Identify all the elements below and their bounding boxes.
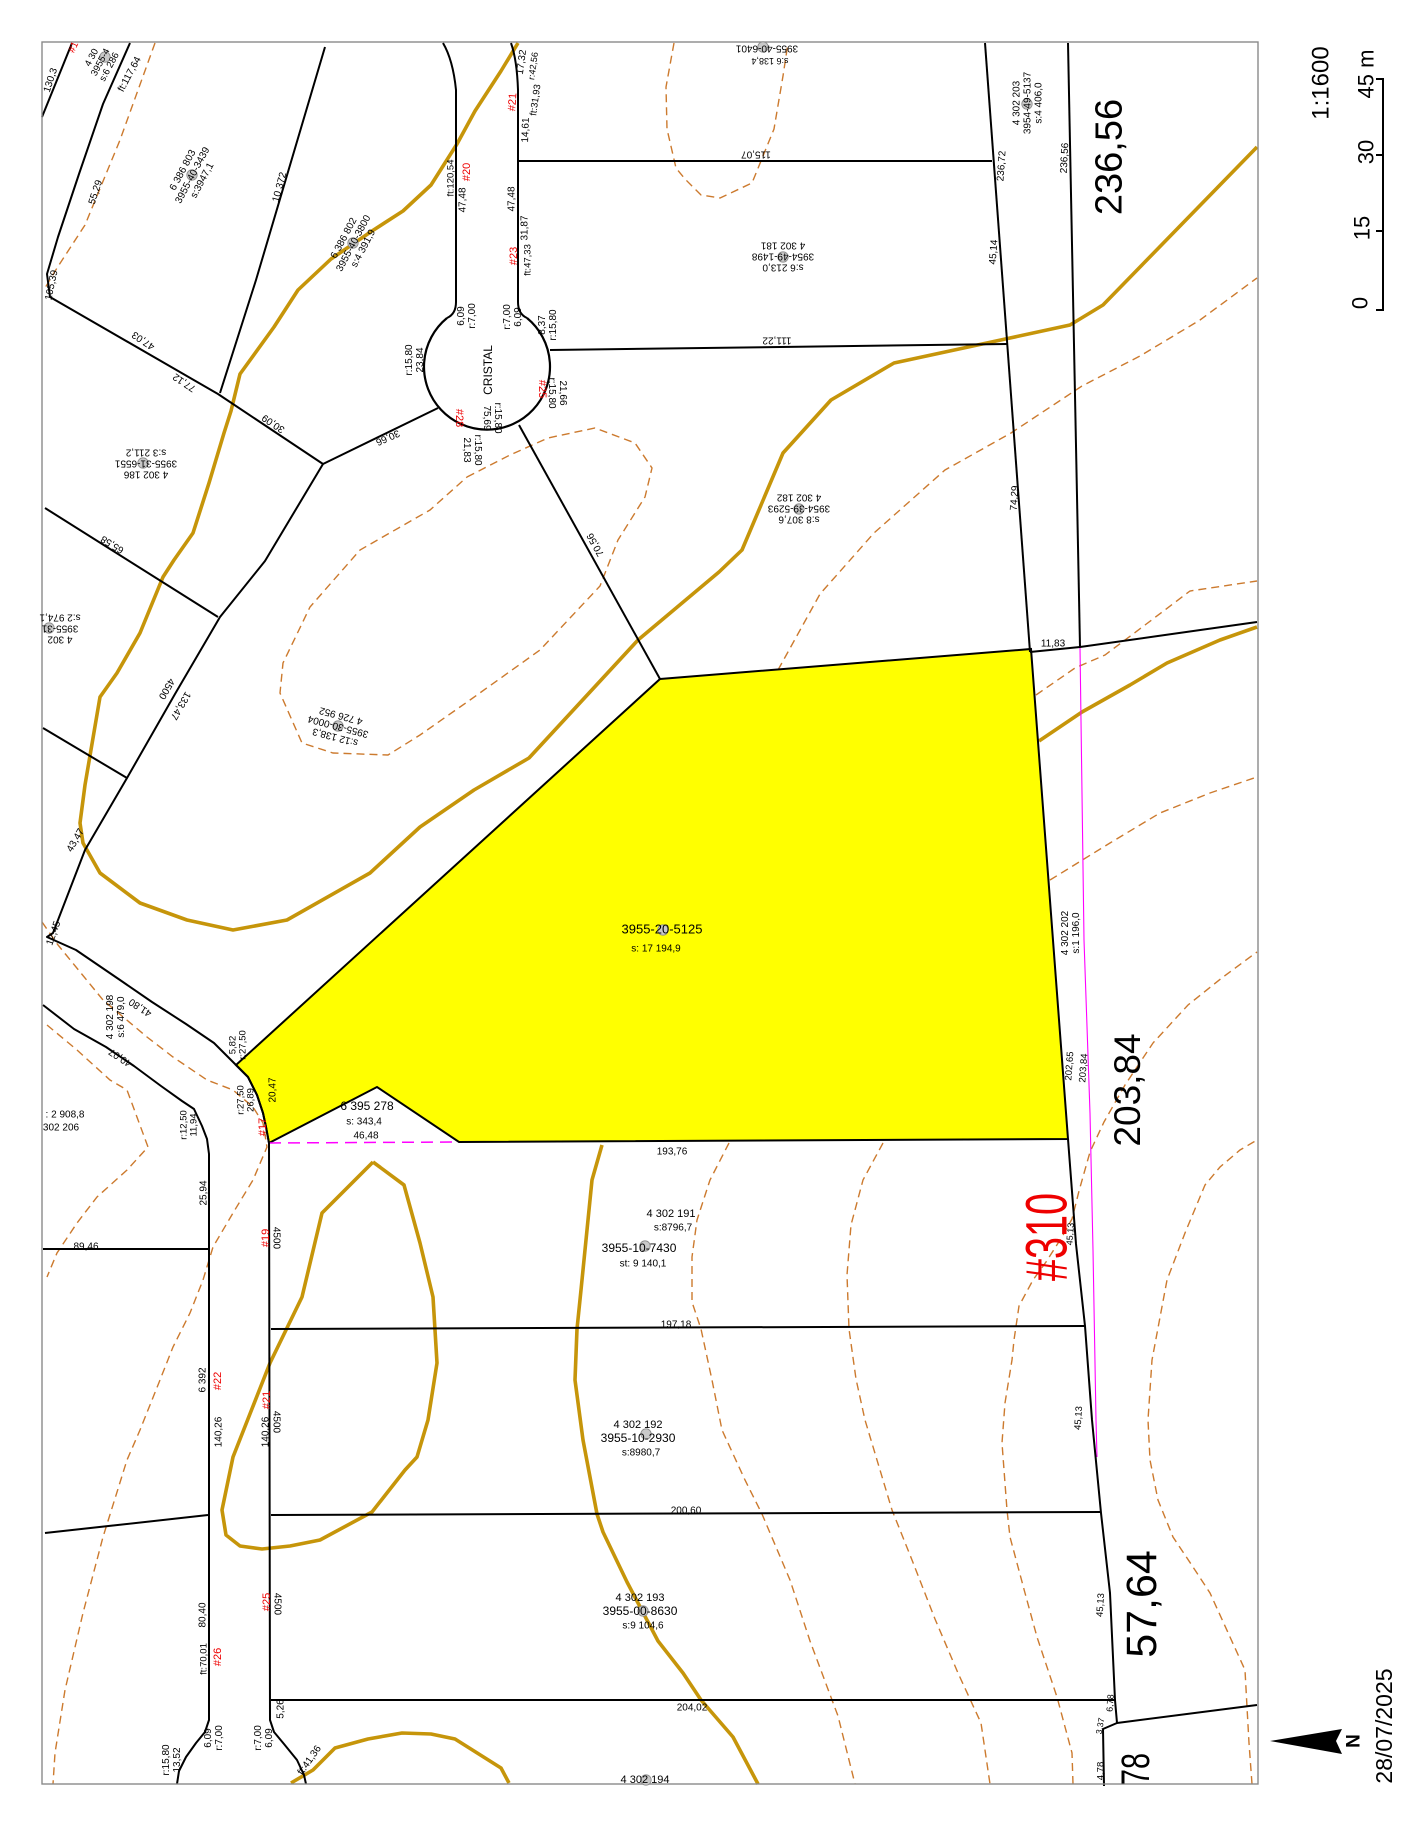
svg-text:r:7,00: r:7,00: [253, 1725, 264, 1751]
svg-text:57,64: 57,64: [1118, 1550, 1166, 1658]
svg-text:3955-40-6401: 3955-40-6401: [735, 43, 798, 54]
svg-text:#26: #26: [212, 1648, 224, 1666]
svg-text:45,13: 45,13: [1072, 1406, 1085, 1430]
svg-text:r:7,00: r:7,00: [502, 304, 513, 330]
svg-text:203,84: 203,84: [1107, 1033, 1148, 1146]
svg-text:111,22: 111,22: [762, 335, 792, 346]
svg-text:30: 30: [1354, 140, 1379, 164]
svg-text:31,87: 31,87: [520, 215, 531, 240]
svg-text:4 302 182: 4 302 182: [776, 492, 821, 503]
svg-text:r:27,50: r:27,50: [237, 1030, 248, 1060]
svg-text:14,61: 14,61: [520, 117, 532, 143]
svg-text:4 302 193: 4 302 193: [616, 1592, 665, 1604]
svg-text:4,78: 4,78: [1095, 1762, 1106, 1781]
svg-text:80,40: 80,40: [198, 1602, 209, 1627]
svg-text:78: 78: [1114, 1753, 1158, 1785]
svg-text:r:15,80: r:15,80: [546, 377, 557, 409]
svg-text:4 302 194: 4 302 194: [621, 1774, 670, 1786]
svg-text:s:3 211,2: s:3 211,2: [125, 447, 166, 458]
svg-text:140,26: 140,26: [214, 1416, 225, 1447]
svg-text:r:15,80: r:15,80: [404, 344, 415, 376]
svg-text:6,09: 6,09: [264, 1728, 275, 1748]
svg-text:6 392: 6 392: [198, 1367, 209, 1392]
svg-text:ft:70,01: ft:70,01: [198, 1643, 209, 1675]
svg-text:15: 15: [1350, 216, 1375, 240]
svg-text:3955-10-7430: 3955-10-7430: [602, 1241, 677, 1255]
svg-text:ft:47,33: ft:47,33: [522, 244, 533, 276]
svg-text:25,94: 25,94: [199, 1180, 210, 1205]
svg-text:s:8796,7: s:8796,7: [654, 1223, 693, 1234]
svg-text:4500: 4500: [271, 1411, 282, 1434]
svg-text:s:6 213,0: s:6 213,0: [762, 262, 804, 273]
svg-text:s:8980,7: s:8980,7: [622, 1448, 661, 1459]
svg-text:193,76: 193,76: [657, 1147, 688, 1158]
svg-text:204,02: 204,02: [677, 1703, 708, 1714]
svg-text:46,48: 46,48: [353, 1131, 378, 1142]
svg-text:6,09: 6,09: [456, 306, 467, 326]
svg-text:s:8 307,6: s:8 307,6: [778, 514, 820, 525]
svg-text:r:15,80: r:15,80: [472, 434, 483, 466]
svg-text:200,60: 200,60: [671, 1506, 702, 1517]
svg-text:197,18: 197,18: [661, 1320, 692, 1331]
svg-text:6 395 278: 6 395 278: [340, 1099, 394, 1113]
svg-text:45,13: 45,13: [1094, 1593, 1107, 1617]
svg-text:89,46: 89,46: [73, 1242, 98, 1253]
svg-text:4 302 186: 4 302 186: [123, 469, 168, 480]
svg-text:47,48: 47,48: [458, 187, 469, 212]
svg-text:115,07: 115,07: [741, 149, 771, 160]
svg-text:#19: #19: [260, 1229, 272, 1247]
svg-text:3955-31-6551: 3955-31-6551: [114, 458, 177, 469]
svg-text:45 m: 45 m: [1354, 50, 1379, 99]
svg-text:26,89: 26,89: [245, 1088, 256, 1112]
svg-text:20,47: 20,47: [268, 1077, 279, 1102]
svg-text:1:1600: 1:1600: [1307, 46, 1334, 119]
svg-text:r:7,00: r:7,00: [467, 303, 478, 329]
svg-text:r:15,80: r:15,80: [548, 309, 559, 341]
svg-text:45,13: 45,13: [1064, 1222, 1076, 1245]
svg-text:4 302 192: 4 302 192: [614, 1419, 663, 1431]
svg-text:4 302 181: 4 302 181: [760, 240, 805, 251]
svg-text:s:9 104,6: s:9 104,6: [622, 1621, 664, 1632]
svg-text:4 302 203: 4 302 203: [1012, 80, 1023, 125]
svg-text:s:6 138,4: s:6 138,4: [751, 56, 788, 66]
svg-text:302 206: 302 206: [43, 1123, 80, 1134]
svg-text:11,94: 11,94: [188, 1113, 199, 1136]
svg-text:13,52: 13,52: [172, 1747, 183, 1772]
svg-text:st: 9 140,1: st: 9 140,1: [620, 1259, 667, 1270]
svg-text:4 302 198: 4 302 198: [105, 994, 116, 1039]
svg-text:3954-39-5293: 3954-39-5293: [767, 503, 830, 514]
svg-text:4500: 4500: [272, 1593, 283, 1616]
svg-text:4 302: 4 302: [47, 634, 72, 645]
svg-text:45,14: 45,14: [988, 239, 1001, 265]
svg-text:202,65: 202,65: [1063, 1051, 1076, 1081]
svg-text:203,84: 203,84: [1077, 1053, 1090, 1083]
svg-text:3955-00-8630: 3955-00-8630: [603, 1604, 678, 1618]
svg-text:3954-49-1498: 3954-49-1498: [751, 251, 814, 262]
svg-text:4 302 191: 4 302 191: [647, 1208, 696, 1220]
svg-text:21,83: 21,83: [461, 437, 472, 462]
svg-text:#22: #22: [212, 1372, 224, 1390]
svg-text:23,84: 23,84: [415, 347, 426, 372]
svg-text:#17: #17: [257, 1118, 269, 1136]
svg-text:#21: #21: [261, 1391, 273, 1409]
svg-text:6,09: 6,09: [203, 1728, 214, 1748]
svg-text:3955-31: 3955-31: [41, 623, 78, 634]
svg-text:3955-20-5125: 3955-20-5125: [622, 922, 703, 937]
svg-text:r:15,80: r:15,80: [161, 1744, 172, 1776]
svg-text:3954-49-5137: 3954-49-5137: [1023, 71, 1034, 134]
svg-text:6,09: 6,09: [513, 307, 524, 327]
svg-text:s:4 406,0: s:4 406,0: [1034, 82, 1045, 124]
svg-text:6,78: 6,78: [1105, 1694, 1116, 1712]
svg-text:s:1 196,0: s:1 196,0: [1071, 912, 1082, 954]
svg-text:4500: 4500: [271, 1227, 282, 1250]
svg-text:3955-10-2930: 3955-10-2930: [601, 1431, 676, 1445]
svg-text:#23: #23: [508, 247, 520, 265]
svg-text:47,48: 47,48: [507, 186, 518, 211]
svg-text:28/07/2025: 28/07/2025: [1371, 1668, 1397, 1783]
svg-text:CRISTAL: CRISTAL: [481, 345, 495, 395]
svg-text:140,26: 140,26: [261, 1416, 272, 1447]
svg-text:11,83: 11,83: [1041, 639, 1066, 650]
svg-text:s:2 974,1: s:2 974,1: [39, 612, 81, 623]
svg-text:s: 17 194,9: s: 17 194,9: [631, 944, 681, 955]
svg-text:#25: #25: [261, 1593, 273, 1611]
svg-text:s:6 479,0: s:6 479,0: [116, 996, 127, 1038]
svg-text:5,26: 5,26: [276, 1699, 287, 1719]
svg-text:236,72: 236,72: [995, 150, 1008, 182]
svg-text:s: 343,4: s: 343,4: [346, 1117, 382, 1128]
svg-text:r:15,80: r:15,80: [492, 402, 503, 434]
svg-text:75,69: 75,69: [481, 405, 492, 430]
svg-text:8,37: 8,37: [537, 315, 548, 335]
svg-text:r:7,00: r:7,00: [214, 1725, 225, 1751]
svg-text:ft:120,54: ft:120,54: [445, 160, 456, 197]
svg-text:236,56: 236,56: [1088, 99, 1130, 215]
svg-text:#28: #28: [453, 409, 465, 427]
svg-text:236,56: 236,56: [1059, 142, 1072, 174]
svg-text:0: 0: [1348, 297, 1373, 309]
svg-text:: 2 908,8: : 2 908,8: [46, 1110, 85, 1121]
svg-text:N: N: [1344, 1734, 1365, 1748]
svg-text:4 302 202: 4 302 202: [1060, 910, 1071, 955]
svg-text:21,66: 21,66: [557, 380, 568, 405]
svg-text:#21: #21: [506, 92, 519, 111]
svg-text:#20: #20: [461, 163, 473, 181]
svg-text:74,29: 74,29: [1009, 485, 1022, 511]
